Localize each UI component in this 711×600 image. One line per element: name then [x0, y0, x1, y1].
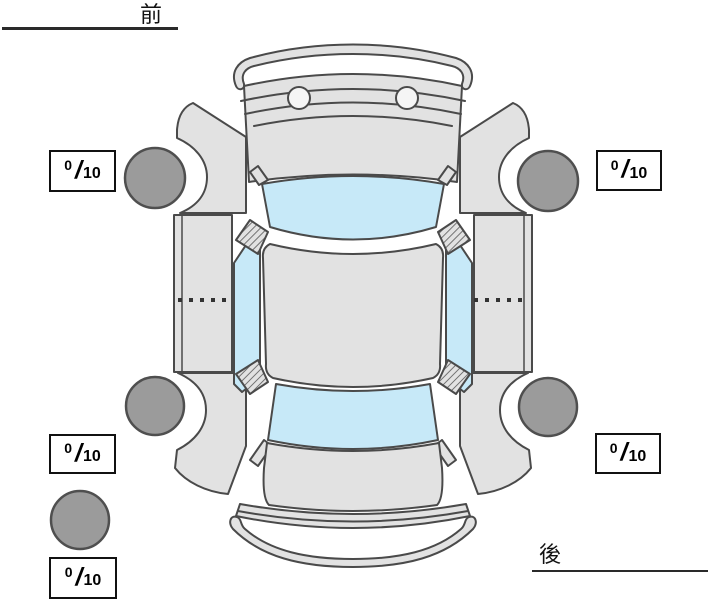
- front-left-fender: [177, 103, 246, 213]
- score-slash: /: [76, 563, 83, 592]
- spare-tread-score-box: 0/10: [49, 557, 117, 599]
- roof-panel: [263, 244, 443, 387]
- rear-left-tread-value: 0: [64, 440, 72, 456]
- front-right-fender: [460, 103, 529, 213]
- front-right-tire: [518, 151, 578, 211]
- hood-panel: [244, 74, 462, 182]
- right-headlight: [396, 87, 418, 109]
- tire-condition-diagram-page: 前 後: [0, 0, 711, 600]
- spare-tire: [51, 491, 109, 549]
- rear-right-tire: [519, 378, 577, 436]
- front-left-tread-value: 0: [64, 157, 72, 173]
- rear-right-tread-value: 0: [610, 440, 618, 456]
- score-slash: /: [621, 438, 628, 467]
- spare-tread-max: 10: [83, 572, 101, 590]
- front-right-tread-score-box: 0/10: [596, 150, 662, 191]
- windshield-glass: [262, 176, 444, 240]
- a-pillar-right: [438, 220, 470, 254]
- score-slash: /: [75, 156, 82, 185]
- front-left-tread-score-box: 0/10: [49, 150, 116, 192]
- rear-left-fender: [175, 373, 246, 494]
- rear-window-glass: [268, 384, 438, 449]
- front-left-tire: [125, 148, 185, 208]
- front-right-tread-value: 0: [611, 157, 619, 173]
- spare-tread-value: 0: [65, 564, 73, 580]
- rear-right-tread-max: 10: [628, 448, 646, 466]
- rear-right-fender: [460, 373, 531, 494]
- front-right-tread-max: 10: [629, 165, 647, 183]
- car-top-view-diagram: [0, 0, 711, 600]
- rear-left-tread-score-box: 0/10: [49, 434, 116, 474]
- trunk-panel: [264, 443, 443, 511]
- a-pillar-left: [236, 220, 268, 254]
- rear-left-tire: [126, 377, 184, 435]
- rear-left-tread-max: 10: [83, 448, 101, 466]
- score-slash: /: [75, 439, 82, 468]
- score-slash: /: [622, 155, 629, 184]
- rear-right-tread-score-box: 0/10: [595, 433, 661, 474]
- front-left-tread-max: 10: [83, 165, 101, 183]
- left-headlight: [288, 87, 310, 109]
